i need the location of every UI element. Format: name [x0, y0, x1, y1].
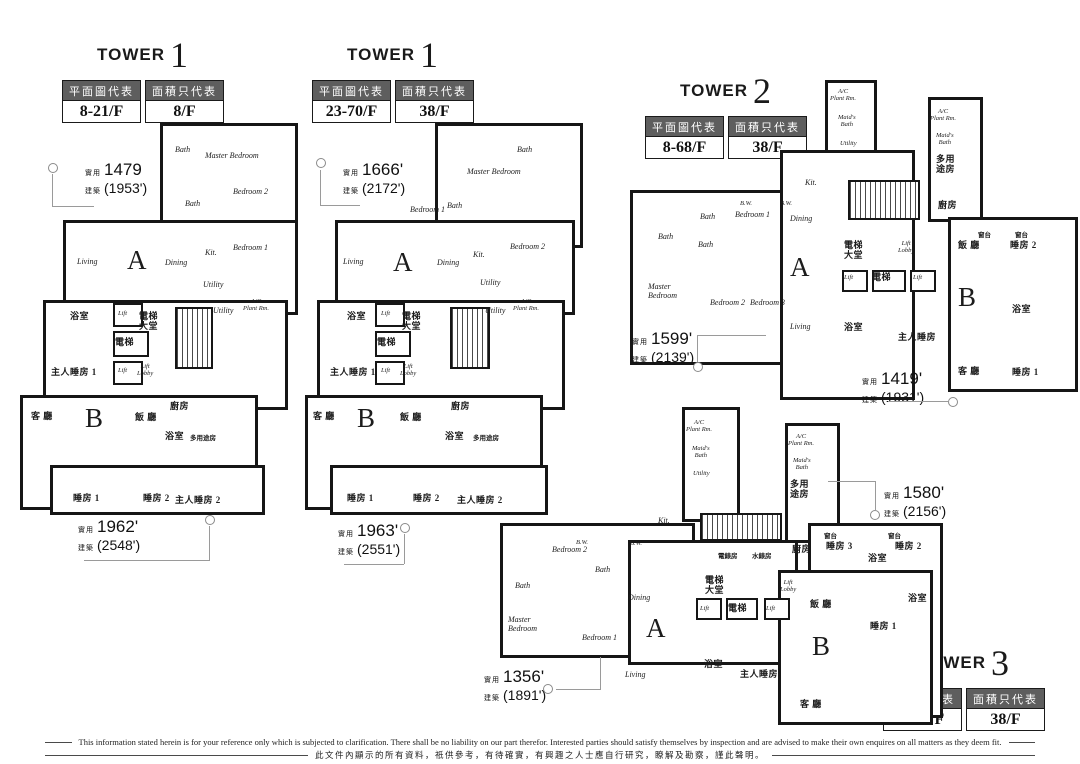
room-label: 電梯 大堂	[402, 311, 421, 331]
room-label: Kit.	[473, 250, 485, 259]
room-label: 睡房 2	[895, 541, 922, 551]
room-label: B.W.	[740, 200, 752, 207]
room-label: 廚房	[451, 401, 470, 411]
saleable-area-row: 實用1356'	[484, 667, 546, 687]
gross-value: (2139')	[651, 349, 694, 365]
room-label: Bedroom 1	[410, 205, 445, 214]
room-label: Dining	[165, 258, 187, 267]
room-label: 浴室	[1012, 304, 1031, 314]
room-label: 睡房 3	[826, 541, 853, 551]
leader-line	[404, 534, 405, 564]
leader-circle	[543, 684, 553, 694]
footer-rule	[45, 755, 308, 756]
room-label: Bedroom 1	[233, 243, 268, 252]
leader-circle	[400, 523, 410, 533]
footer-row-zh: 此文件內顯示的所有資料，祇供參考，有待確實，有興趣之人士應自行研究，瞭解及勘察，…	[45, 749, 1035, 761]
room-label: Bedroom 3	[750, 298, 785, 307]
room-label: 客 廳	[800, 699, 822, 709]
room-label: A/C Plant Rm.	[686, 419, 712, 433]
gross-label: 建築	[632, 355, 648, 365]
saleable-label: 實用	[338, 529, 354, 539]
room-label: Utility	[693, 470, 710, 477]
footer-text-zh: 此文件內顯示的所有資料，祇供參考，有待確實，有興趣之人士應自行研究，瞭解及勘察，…	[315, 749, 765, 761]
footer-rule	[45, 742, 72, 743]
room-label: Living	[77, 257, 97, 266]
room-label: 窗台	[888, 533, 901, 540]
room-label: Utility	[203, 280, 223, 289]
tower1-plan-8-21: BathMaster BedroomBathBedroom 2Bedroom 1…	[15, 115, 300, 525]
room-label: 飯 廳	[810, 599, 832, 609]
tower-number: 1	[420, 35, 439, 75]
room-label: B	[812, 631, 830, 661]
room-label: 多用 途房	[936, 154, 955, 174]
room-label: Utility	[213, 306, 233, 315]
floor-plan-page: TOWER1 平面圖代表 8-21/F 面積只代表 8/F TOWER1 平面圖…	[0, 0, 1080, 764]
room-label: Bedroom 2	[510, 242, 545, 251]
room-label: 睡房 2	[1010, 240, 1037, 250]
room-label: 睡房 2	[143, 493, 170, 503]
room-label: Maid's Bath	[692, 445, 710, 459]
gross-area-row: 建築(1953')	[85, 180, 147, 196]
room-label: B	[357, 403, 375, 433]
room-label: Bedroom 1	[735, 210, 770, 219]
room-label: Living	[625, 670, 645, 679]
room-label: Maid's Bath	[793, 457, 811, 471]
leader-circle	[316, 158, 326, 168]
room-label: Bedroom 2	[710, 298, 745, 307]
room-label: Dining	[437, 258, 459, 267]
room-label: 多用途房	[190, 435, 216, 442]
room-label: Living	[343, 257, 363, 266]
room-label: Lift	[766, 605, 775, 612]
room-label: A/C Plant Rm.	[513, 298, 539, 312]
gross-label: 建築	[343, 186, 359, 196]
room-label: Lift	[118, 367, 127, 374]
area-tower3-flat-a: 實用1356'建築(1891')	[484, 667, 546, 703]
gross-value: (1931')	[881, 389, 924, 405]
room-label: B.W.	[780, 200, 792, 207]
gross-label: 建築	[884, 509, 900, 519]
room-label: 客 廳	[958, 366, 980, 376]
room-label: Bath	[185, 199, 200, 208]
leader-line	[344, 564, 404, 565]
plan-floors-header: 平面圖代表	[313, 81, 390, 101]
room-label: 主人睡房	[898, 332, 936, 342]
tower1-low-header: TOWER1 平面圖代表 8-21/F 面積只代表 8/F	[62, 34, 224, 123]
saleable-area-row: 實用1962'	[78, 517, 140, 537]
room-label: Master Bedroom	[467, 167, 521, 176]
room-label: 電錶房	[718, 553, 738, 560]
leader-line	[52, 206, 94, 207]
saleable-label: 實用	[343, 168, 359, 178]
gross-label: 建築	[85, 186, 101, 196]
gross-area-row: 建築(2172')	[343, 180, 405, 196]
leader-line	[84, 560, 210, 561]
tower-number: 1	[170, 35, 189, 75]
leader-line	[888, 401, 948, 402]
room-label: 電梯	[728, 603, 747, 613]
staircase	[700, 513, 782, 541]
room-label: 主人睡房	[740, 669, 778, 679]
footer-rule	[772, 755, 1035, 756]
room-label: 客 廳	[31, 411, 53, 421]
leader-line	[875, 481, 876, 511]
area-tower3-flat-b: 實用1580'建築(2156')	[884, 483, 946, 519]
staircase	[450, 307, 490, 369]
leader-circle	[205, 515, 215, 525]
room-label: 廚房	[792, 544, 811, 554]
leader-line	[600, 657, 601, 690]
room-label: Bath	[658, 232, 673, 241]
room-label: Bedroom 1	[582, 633, 617, 642]
room-label: 主人睡房 1	[51, 367, 97, 377]
saleable-value: 1580'	[903, 483, 944, 503]
gross-area-row: 建築(1891')	[484, 687, 546, 703]
leader-line	[698, 335, 766, 336]
room-label: Kit.	[658, 516, 670, 525]
room-label: 窗台	[1015, 232, 1028, 239]
footer-disclaimer: This information stated herein is for yo…	[45, 737, 1035, 761]
leader-line	[697, 335, 698, 362]
room-label: 睡房 1	[1012, 367, 1039, 377]
gross-value: (2172')	[362, 180, 405, 196]
room-label: 廚房	[170, 401, 189, 411]
gross-label: 建築	[338, 547, 354, 557]
saleable-area-row: 實用1479	[85, 160, 147, 180]
room-label: 睡房 1	[347, 493, 374, 503]
room-label: 浴室	[165, 431, 184, 441]
area-tower1-low-flat-b: 實用1962'建築(2548')	[78, 517, 140, 553]
room-label: A/C Plant Rm.	[788, 433, 814, 447]
leader-circle	[870, 510, 880, 520]
room-label: A	[790, 252, 810, 282]
room-label: Maid's Bath	[936, 132, 954, 146]
leader-circle	[948, 397, 958, 407]
gross-value: (1891')	[503, 687, 546, 703]
room-label: A	[127, 245, 147, 275]
room-label: Bedroom 2	[233, 187, 268, 196]
gross-area-row: 建築(2139')	[632, 349, 694, 365]
saleable-label: 實用	[862, 377, 878, 387]
room-label: Utility	[485, 306, 505, 315]
tower3-plan: A/C Plant Rm.Maid's BathUtilityKit.電錶房水錶…	[480, 395, 1080, 735]
gross-value: (1953')	[104, 180, 147, 196]
room-label: Bath	[515, 581, 530, 590]
room-label: Lift Lobby	[137, 363, 153, 377]
area-tower2-flat-a: 實用1599'建築(2139')	[632, 329, 694, 365]
gross-label: 建築	[78, 543, 94, 553]
saleable-label: 實用	[884, 491, 900, 501]
room-label: Bath	[595, 565, 610, 574]
gross-value: (2551')	[357, 541, 400, 557]
room-label: Master Bedroom	[648, 282, 677, 300]
gross-area-row: 建築(2156')	[884, 503, 946, 519]
room-label: Kit.	[205, 248, 217, 257]
room-label: Lift Lobby	[400, 363, 416, 377]
room-label: Bath	[447, 201, 462, 210]
room-label: Bedroom 2	[552, 545, 587, 554]
room-label: A/C Plant Rm.	[930, 108, 956, 122]
room-label: Lift	[381, 310, 390, 317]
area-floor-header: 面積只代表	[396, 81, 473, 101]
leader-line	[320, 170, 321, 206]
saleable-area-row: 實用1599'	[632, 329, 694, 349]
tower-title-text: TOWER	[97, 45, 165, 64]
room-label: Bath	[700, 212, 715, 221]
room-label: Bath	[175, 145, 190, 154]
saleable-value: 1356'	[503, 667, 544, 687]
room-label: Living	[790, 322, 810, 331]
room-label: B	[85, 403, 103, 433]
room-label: 客 廳	[313, 411, 335, 421]
saleable-area-row: 實用1963'	[338, 521, 400, 541]
saleable-value: 1419'	[881, 369, 922, 389]
gross-label: 建築	[862, 395, 878, 405]
leader-line	[52, 174, 53, 207]
area-tower1-low-flat-a: 實用1479建築(1953')	[85, 160, 147, 196]
room-label: 浴室	[868, 553, 887, 563]
saleable-label: 實用	[85, 168, 101, 178]
wall-outline	[50, 465, 265, 515]
room-label: 電梯	[377, 337, 396, 347]
area-tower1-high-flat-b: 實用1963'建築(2551')	[338, 521, 400, 557]
footer-row-en: This information stated herein is for yo…	[45, 737, 1035, 747]
saleable-value: 1666'	[362, 160, 403, 180]
gross-area-row: 建築(1931')	[862, 389, 924, 405]
room-label: 電梯 大堂	[139, 311, 158, 331]
leader-line	[209, 526, 210, 560]
room-label: 廚房	[938, 200, 957, 210]
gross-label: 建築	[484, 693, 500, 703]
room-label: B	[958, 282, 976, 312]
room-label: 窗台	[824, 533, 837, 540]
room-label: Bath	[517, 145, 532, 154]
room-label: 浴室	[347, 311, 366, 321]
saleable-value: 1962'	[97, 517, 138, 537]
room-label: A/C Plant Rm.	[830, 88, 856, 102]
room-label: Lift	[913, 274, 922, 281]
gross-area-row: 建築(2548')	[78, 537, 140, 553]
room-label: 電梯	[115, 337, 134, 347]
room-label: 水錶房	[752, 553, 772, 560]
room-label: 飯 廳	[135, 412, 157, 422]
room-label: A	[646, 613, 666, 643]
room-label: Lift	[118, 310, 127, 317]
room-label: Lift	[381, 367, 390, 374]
leader-circle	[48, 163, 58, 173]
area-tower1-high-flat-a: 實用1666'建築(2172')	[343, 160, 405, 196]
gross-area-row: 建築(2551')	[338, 541, 400, 557]
room-label: Utility	[840, 140, 857, 147]
room-label: 浴室	[908, 593, 927, 603]
room-label: Dining	[628, 593, 650, 602]
room-label: B.W.	[630, 540, 642, 547]
room-label: 電梯 大堂	[844, 240, 863, 260]
saleable-value: 1963'	[357, 521, 398, 541]
room-label: 睡房 2	[413, 493, 440, 503]
tower1-high-title: TOWER1	[312, 34, 474, 76]
tower1-high-header: TOWER1 平面圖代表 23-70/F 面積只代表 38/F	[312, 34, 474, 123]
footer-text-en: This information stated herein is for yo…	[79, 737, 1002, 747]
room-label: Bath	[698, 240, 713, 249]
room-label: Master Bedroom	[205, 151, 259, 160]
room-label: 飯 廳	[400, 412, 422, 422]
room-label: 電梯	[872, 272, 891, 282]
room-label: A/C Plant Rm.	[243, 298, 269, 312]
room-label: Lift Lobby	[780, 579, 796, 593]
room-label: 窗台	[978, 232, 991, 239]
footer-rule	[1009, 742, 1036, 743]
room-label: 浴室	[844, 322, 863, 332]
leader-line	[828, 481, 875, 482]
room-label: 多用 途房	[790, 479, 809, 499]
saleable-label: 實用	[484, 675, 500, 685]
area-floor-header: 面積只代表	[146, 81, 223, 101]
room-label: A	[393, 247, 413, 277]
leader-circle	[693, 362, 703, 372]
room-label: Dining	[790, 214, 812, 223]
room-label: Lift Lobby	[898, 240, 914, 254]
leader-line	[556, 689, 600, 690]
gross-value: (2548')	[97, 537, 140, 553]
room-label: 電梯 大堂	[705, 575, 724, 595]
saleable-label: 實用	[632, 337, 648, 347]
area-tower2-flat-b: 實用1419'建築(1931')	[862, 369, 924, 405]
room-label: Lift	[700, 605, 709, 612]
room-label: Lift	[844, 274, 853, 281]
saleable-label: 實用	[78, 525, 94, 535]
saleable-area-row: 實用1580'	[884, 483, 946, 503]
room-label: 睡房 1	[870, 621, 897, 631]
plan-floors-header: 平面圖代表	[63, 81, 140, 101]
staircase	[175, 307, 213, 369]
gross-value: (2156')	[903, 503, 946, 519]
room-label: Maid's Bath	[838, 114, 856, 128]
saleable-area-row: 實用1666'	[343, 160, 405, 180]
room-label: Master Bedroom	[508, 615, 537, 633]
room-label: 浴室	[704, 659, 723, 669]
staircase	[848, 180, 920, 220]
leader-line	[320, 205, 360, 206]
saleable-area-row: 實用1419'	[862, 369, 924, 389]
tower1-low-title: TOWER1	[62, 34, 224, 76]
room-label: 睡房 1	[73, 493, 100, 503]
room-label: 主人睡房 2	[175, 495, 221, 505]
room-label: 飯 廳	[958, 240, 980, 250]
saleable-value: 1479	[104, 160, 142, 180]
room-label: Utility	[480, 278, 500, 287]
room-label: Kit.	[805, 178, 817, 187]
room-label: 浴室	[70, 311, 89, 321]
room-label: 浴室	[445, 431, 464, 441]
room-label: 主人睡房 1	[330, 367, 376, 377]
saleable-value: 1599'	[651, 329, 692, 349]
tower-title-text: TOWER	[347, 45, 415, 64]
